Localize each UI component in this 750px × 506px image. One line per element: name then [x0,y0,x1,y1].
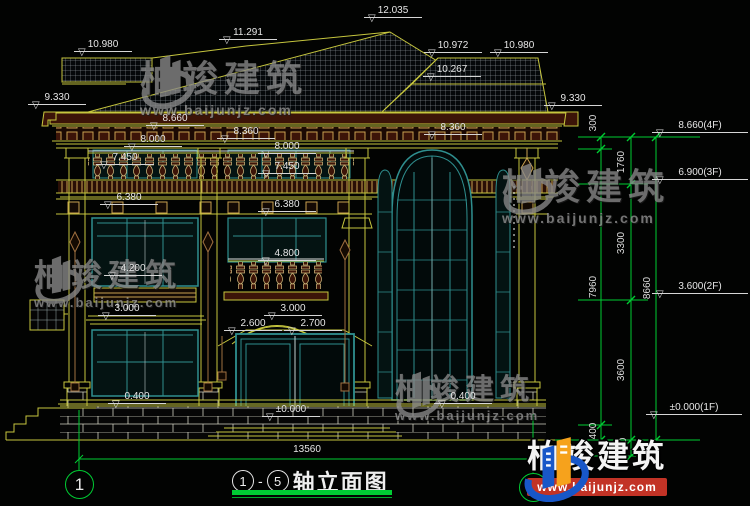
floor-level-marker: 3.600(2F) ▽ [652,281,748,292]
baijun-logo-icon [140,50,196,110]
elevation-marker: 8.000 ▽ [124,134,182,145]
dimension-value: 8660 [642,277,653,299]
elevation-marker: 6.380 ▽ [258,199,316,210]
axis-circle-start: 1 [232,470,254,492]
company-logo: 柏竣建筑 www.baijunjz.com [523,436,667,496]
title-underline-thick [232,490,392,495]
watermark-top: 柏竣建筑 www.baijunjz.com [140,50,308,118]
axis-circle-end: 5 [267,470,289,492]
vertical-dimension: 3600 [616,352,628,388]
elevation-marker: 2.700 ▽ [284,318,342,329]
level-triangle-icon: ▽ [104,201,112,211]
level-triangle-icon: ▽ [656,290,664,300]
overall-width-dimension: 13560 [277,444,337,455]
vertical-dimension: 1760 [616,144,628,180]
level-triangle-icon: ▽ [150,122,158,132]
elevation-marker: ±0.000 ▽ [262,404,320,415]
level-triangle-icon: ▽ [548,102,556,112]
baijun-logo-icon [34,250,84,306]
axis-bubble-1: 1 [65,470,94,499]
level-triangle-icon: ▽ [32,101,40,111]
marker-line [652,179,748,180]
elevation-marker: 3.000 ▽ [98,303,156,314]
elevation-marker: 0.400 ▽ [434,391,492,402]
vertical-dimension: 7960 [588,269,600,305]
elevation-marker: 0.400 ▽ [108,391,166,402]
level-triangle-icon: ▽ [112,400,120,410]
elevation-marker: 8.000 ▽ [258,141,316,152]
marker-line [652,132,748,133]
dimension-value: 300 [588,115,599,132]
elevation-marker: 3.000 ▽ [264,303,322,314]
level-triangle-icon: ▽ [262,208,270,218]
floor-level-value: ±0.000(1F) [646,402,742,413]
elevation-marker: 10.980 ▽ [490,40,548,51]
level-triangle-icon: ▽ [368,14,376,24]
elevation-marker: 9.330 ▽ [544,93,602,104]
balcony-2f [224,259,328,300]
floor-level-marker: ±0.000(1F) ▽ [646,402,742,413]
elevation-marker: 10.980 ▽ [74,39,132,50]
cad-elevation-screenshot: 柏竣建筑 www.baijunjz.com 柏竣建筑 www.baijunjz.… [0,0,750,506]
elevation-marker: 12.035 ▽ [364,5,422,16]
title-underline-thin [232,497,392,498]
vertical-dimension: 300 [588,105,600,141]
dimension-value: 3600 [616,359,627,381]
floor-level-marker: 8.660(4F) ▽ [652,120,748,131]
elevation-marker: 4.200 ▽ [104,263,162,274]
level-triangle-icon: ▽ [428,131,436,141]
level-triangle-icon: ▽ [427,73,435,83]
dimension-value: 1760 [616,151,627,173]
level-triangle-icon: ▽ [650,411,658,421]
marker-line [646,414,742,415]
elevation-marker: 10.972 ▽ [424,40,482,51]
title-dash: - [258,473,263,489]
level-triangle-icon: ▽ [221,135,229,145]
dimension-value: 3300 [616,232,627,254]
window-arched-main [392,150,472,400]
level-triangle-icon: ▽ [262,257,270,267]
level-triangle-icon: ▽ [494,49,502,59]
watermark-right: 柏竣建筑 www.baijunjz.com [502,158,670,226]
level-triangle-icon: ▽ [108,272,116,282]
floor-level-marker: 6.900(3F) ▽ [652,167,748,178]
elevation-marker: 2.600 ▽ [224,318,282,329]
level-triangle-icon: ▽ [428,49,436,59]
elevation-marker: 7.450 ▽ [96,152,154,163]
level-triangle-icon: ▽ [656,176,664,186]
level-triangle-icon: ▽ [262,150,270,160]
elevation-marker: 8.660 ▽ [146,113,204,124]
level-triangle-icon: ▽ [102,312,110,322]
window-1f-left [92,330,198,396]
elevation-marker: 8.360 ▽ [424,122,482,133]
level-triangle-icon: ▽ [262,170,270,180]
level-triangle-icon: ▽ [438,400,446,410]
elevation-marker: 6.380 ▽ [100,192,158,203]
elevation-marker: 10.267 ▽ [423,64,481,75]
level-triangle-icon: ▽ [223,36,231,46]
level-triangle-icon: ▽ [228,327,236,337]
floor-level-value: 8.660(4F) [652,120,748,131]
level-triangle-icon: ▽ [656,129,664,139]
elevation-marker: 8.360 ▽ [217,126,275,137]
elevation-marker: 9.330 ▽ [28,92,86,103]
marker-line [652,293,748,294]
elevation-marker: 7.450 ▽ [258,161,316,172]
company-logo-icon [523,436,595,502]
dimension-value: 7960 [588,276,599,298]
baijun-logo-icon [502,158,556,216]
level-triangle-icon: ▽ [100,161,108,171]
elevation-marker: 11.291 ▽ [219,27,277,38]
level-triangle-icon: ▽ [266,413,274,423]
vertical-dimension: 8660 [642,270,654,306]
level-triangle-icon: ▽ [288,327,296,337]
level-triangle-icon: ▽ [78,48,86,58]
window-arched-side-left [378,170,392,398]
elevation-marker: 4.800 ▽ [258,248,316,259]
vertical-dimension: 3300 [616,225,628,261]
floor-level-value: 3.600(2F) [652,281,748,292]
floor-level-value: 6.900(3F) [652,167,748,178]
